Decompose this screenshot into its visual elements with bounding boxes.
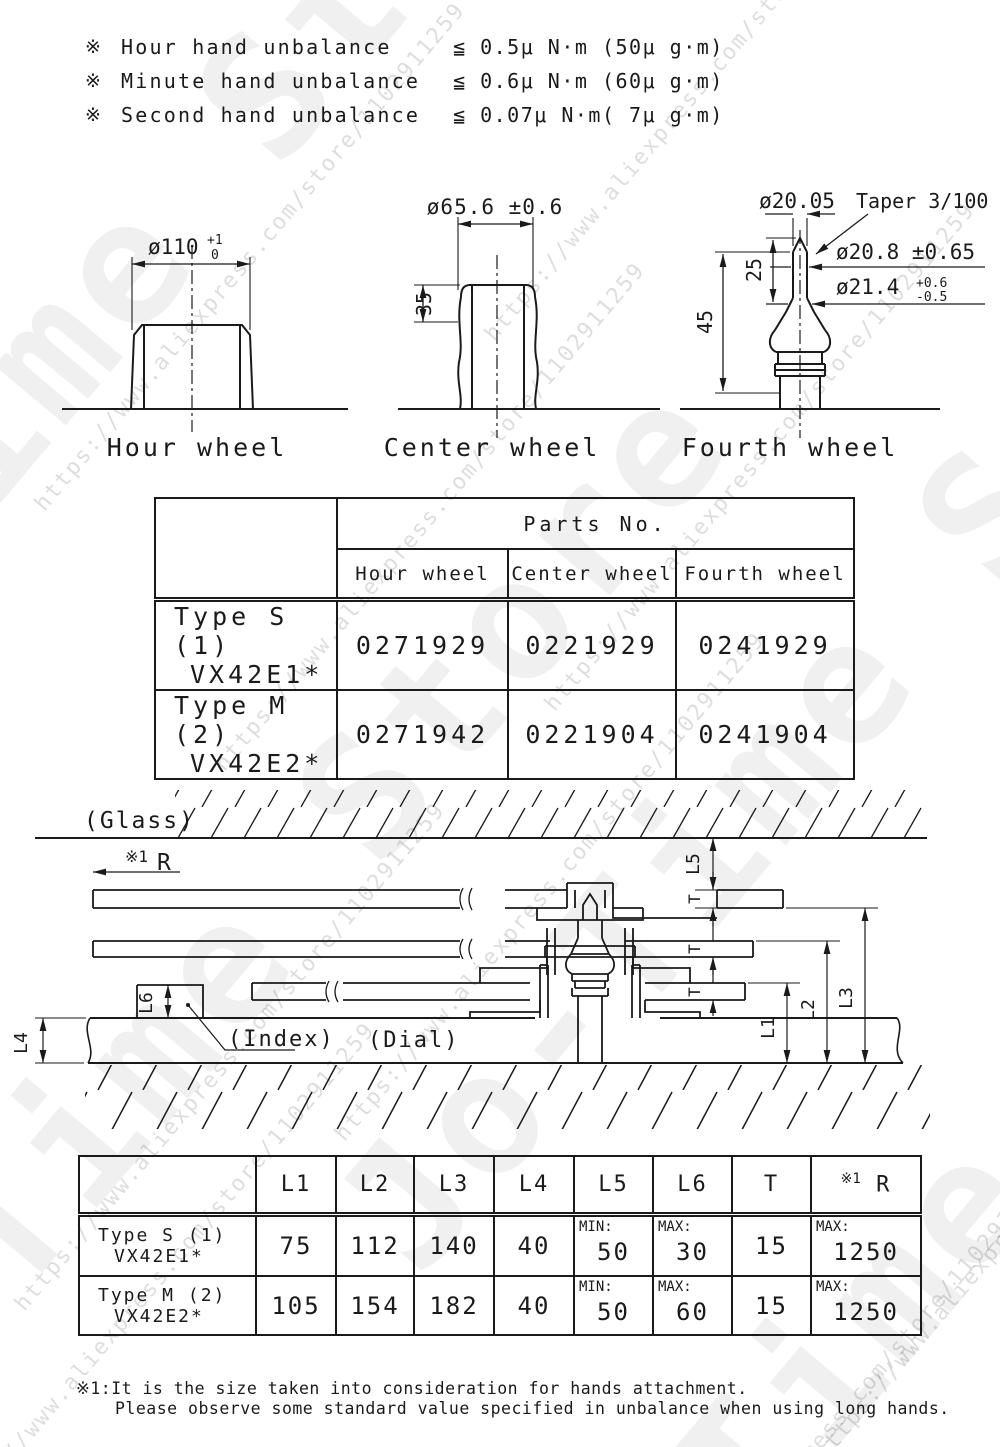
dim-l6-label: L6 bbox=[136, 992, 157, 1014]
parts-row-type-s: Type S (1) VX42E1* 0271929 0221929 02419… bbox=[155, 600, 854, 691]
dim-value-qualified: MAX:30 bbox=[653, 1215, 732, 1277]
col-header-l3: L3 bbox=[414, 1156, 494, 1215]
blank-cell bbox=[155, 498, 337, 600]
glass-label: (Glass) bbox=[84, 808, 195, 834]
dim-value: 15 bbox=[732, 1276, 811, 1335]
break-mark bbox=[460, 888, 472, 910]
dim-value: 154 bbox=[336, 1276, 414, 1335]
row-label-type-s: Type S (1) VX42E1* bbox=[79, 1215, 256, 1277]
col-header-l6: L6 bbox=[653, 1156, 732, 1215]
second-hand-mid bbox=[505, 890, 567, 908]
type-name: Type M (2) bbox=[80, 1285, 255, 1306]
parts-no-title: Parts No. bbox=[337, 498, 854, 549]
type-code: VX42E1* bbox=[156, 660, 336, 689]
break-mark bbox=[326, 981, 338, 1002]
r-note: ※1 bbox=[125, 847, 148, 866]
row-label-type-s: Type S (1) VX42E1* bbox=[155, 600, 337, 691]
type-name: Type M (2) bbox=[156, 691, 336, 749]
col-header-hour-wheel: Hour wheel bbox=[337, 549, 508, 600]
dim-value: 40 bbox=[494, 1215, 574, 1277]
cross-section-diagram: (Glass) ※1 R bbox=[0, 760, 1000, 1140]
dim-value-qualified: MIN:50 bbox=[574, 1215, 653, 1277]
row-label-type-m: Type M (2) VX42E2* bbox=[79, 1276, 256, 1335]
dim-value-qualified: MAX:1250 bbox=[811, 1215, 921, 1277]
hour-hand-left bbox=[252, 983, 326, 1000]
dim-hour-tol-minus: 0 bbox=[211, 248, 219, 263]
fourth-wheel-label: Fourth wheel bbox=[682, 433, 899, 462]
dims-row-type-s: Type S (1) VX42E1* 75 112 140 40 MIN:50 … bbox=[79, 1215, 921, 1277]
wheel-drawings: ø110 +1 0 Hour wheel ø65.6 ±0.6 35 Cente… bbox=[0, 180, 1000, 480]
index-label: (Index) bbox=[228, 1027, 335, 1052]
dim-center-height: 35 bbox=[412, 292, 436, 316]
dial bbox=[87, 1018, 903, 1063]
part-number: 0221929 bbox=[508, 600, 676, 691]
dim-value: 140 bbox=[414, 1215, 494, 1277]
hour-wheel-label: Hour wheel bbox=[107, 433, 288, 462]
center-wheel-shape bbox=[458, 285, 538, 409]
spec-value: ≦ 0.6μ N·m (60μ g·m) bbox=[453, 69, 724, 93]
break-mark bbox=[460, 939, 472, 959]
type-code: VX42E2* bbox=[80, 1306, 255, 1327]
type-code: VX42E1* bbox=[80, 1246, 255, 1267]
blank-cell bbox=[79, 1156, 256, 1215]
hour-wheel-drawing: ø110 +1 0 Hour wheel bbox=[107, 233, 288, 462]
dim-l4-label: L4 bbox=[11, 1032, 32, 1054]
parts-table-title-row: Parts No. bbox=[155, 498, 854, 549]
footnote-line-1: ※1:It is the size taken into considerati… bbox=[76, 1379, 950, 1398]
type-name: Type S (1) bbox=[80, 1225, 255, 1246]
part-number: 0271929 bbox=[337, 600, 508, 691]
unbalance-spec-list: ※ Hour hand unbalance ≦ 0.5μ N·m (50μ g·… bbox=[85, 30, 724, 132]
col-header-l1: L1 bbox=[256, 1156, 336, 1215]
col-header-l4: L4 bbox=[494, 1156, 574, 1215]
spec-label: Hour hand unbalance bbox=[121, 35, 453, 59]
dim-value: 75 bbox=[256, 1215, 336, 1277]
movement-hatching bbox=[85, 1065, 930, 1129]
center-wheel-stack bbox=[470, 883, 717, 1063]
dim-value-qualified: MIN:50 bbox=[574, 1276, 653, 1335]
parts-number-table: Parts No. Hour wheel Center wheel Fourth… bbox=[154, 497, 855, 780]
part-number: 0241929 bbox=[676, 600, 854, 691]
dimensions-table: L1 L2 L3 L4 L5 L6 T ※1 R Type S (1) VX42… bbox=[78, 1155, 922, 1336]
second-hand-right bbox=[717, 890, 783, 908]
dim-hour-tol-plus: +1 bbox=[207, 233, 223, 248]
dim-t-label: T bbox=[685, 894, 704, 904]
height-dimensions: L5 T T T L1 L2 L3 bbox=[683, 838, 878, 1063]
col-header-l5: L5 bbox=[574, 1156, 653, 1215]
col-header-t: T bbox=[732, 1156, 811, 1215]
r-label: R bbox=[876, 1173, 891, 1198]
dim-t-label: T bbox=[685, 944, 704, 954]
dim-fourth-taper: Taper 3/100 bbox=[856, 189, 988, 213]
dim-l1-label: L1 bbox=[758, 1017, 779, 1039]
spec-line-minute: ※ Minute hand unbalance ≦ 0.6μ N·m (60μ … bbox=[85, 64, 724, 98]
dim-value-qualified: MAX:1250 bbox=[811, 1276, 921, 1335]
spec-label: Second hand unbalance bbox=[121, 103, 453, 127]
dim-fourth-base: ø21.4 bbox=[836, 275, 899, 299]
hour-hand-mid bbox=[343, 983, 530, 1000]
dim-fourth-45: 45 bbox=[693, 310, 717, 334]
dim-hour-diameter: ø110 bbox=[148, 235, 199, 259]
footnote-line-2: Please observe some standard value speci… bbox=[115, 1399, 950, 1418]
type-name: Type S (1) bbox=[156, 602, 336, 660]
spec-sheet-page: Jo-Time Store Jo-Time Store Jo-Time Stor… bbox=[0, 0, 1000, 1447]
minute-hand-mid bbox=[505, 941, 550, 957]
col-header-r: ※1 R bbox=[811, 1156, 921, 1215]
spec-value: ≦ 0.5μ N·m (50μ g·m) bbox=[453, 35, 724, 59]
glass-hatching bbox=[175, 790, 927, 837]
spec-label: Minute hand unbalance bbox=[121, 69, 453, 93]
dim-l5-label: L5 bbox=[683, 853, 704, 875]
col-header-fourth-wheel: Fourth wheel bbox=[676, 549, 854, 600]
dim-l2-label: L2 bbox=[798, 999, 819, 1021]
dim-t-label: T bbox=[685, 987, 704, 997]
center-wheel-label: Center wheel bbox=[384, 433, 601, 462]
dim-center-diameter: ø65.6 ±0.6 bbox=[427, 195, 563, 219]
dim-fourth-base-tol-plus: +0.6 bbox=[916, 276, 947, 291]
col-header-l2: L2 bbox=[336, 1156, 414, 1215]
footnotes: ※1:It is the size taken into considerati… bbox=[76, 1379, 950, 1418]
fourth-wheel-drawing: ø20.05 Taper 3/100 ø20.8 ±0.65 ø21.4 +0.… bbox=[682, 189, 989, 462]
spec-value: ≦ 0.07μ N·m( 7μ g·m) bbox=[453, 103, 724, 127]
dims-header-row: L1 L2 L3 L4 L5 L6 T ※1 R bbox=[79, 1156, 921, 1215]
col-header-center-wheel: Center wheel bbox=[508, 549, 676, 600]
spec-line-hour: ※ Hour hand unbalance ≦ 0.5μ N·m (50μ g·… bbox=[85, 30, 724, 64]
dim-value: 15 bbox=[732, 1215, 811, 1277]
dim-value: 105 bbox=[256, 1276, 336, 1335]
dims-row-type-m: Type M (2) VX42E2* 105 154 182 40 MIN:50… bbox=[79, 1276, 921, 1335]
reference-mark-icon: ※ bbox=[85, 36, 121, 58]
dim-fourth-25: 25 bbox=[742, 258, 766, 282]
dim-value: 112 bbox=[336, 1215, 414, 1277]
spec-line-second: ※ Second hand unbalance ≦ 0.07μ N·m( 7μ … bbox=[85, 98, 724, 132]
reference-mark-icon: ※ bbox=[85, 70, 121, 92]
dim-fourth-base-tol-minus: -0.5 bbox=[916, 290, 947, 305]
dim-value-qualified: MAX:60 bbox=[653, 1276, 732, 1335]
second-hand-left bbox=[93, 890, 460, 908]
dim-fourth-mid: ø20.8 ±0.65 bbox=[836, 240, 975, 264]
center-wheel-drawing: ø65.6 ±0.6 35 Center wheel bbox=[384, 195, 601, 462]
reference-mark-icon: ※ bbox=[85, 104, 121, 126]
dial-label: (Dial) bbox=[368, 1028, 459, 1053]
dim-value: 40 bbox=[494, 1276, 574, 1335]
dim-l3-label: L3 bbox=[836, 987, 857, 1009]
minute-hand-left bbox=[93, 941, 460, 957]
r-note: ※1 bbox=[841, 1171, 861, 1187]
dim-value: 182 bbox=[414, 1276, 494, 1335]
dim-fourth-tip: ø20.05 bbox=[759, 189, 835, 213]
